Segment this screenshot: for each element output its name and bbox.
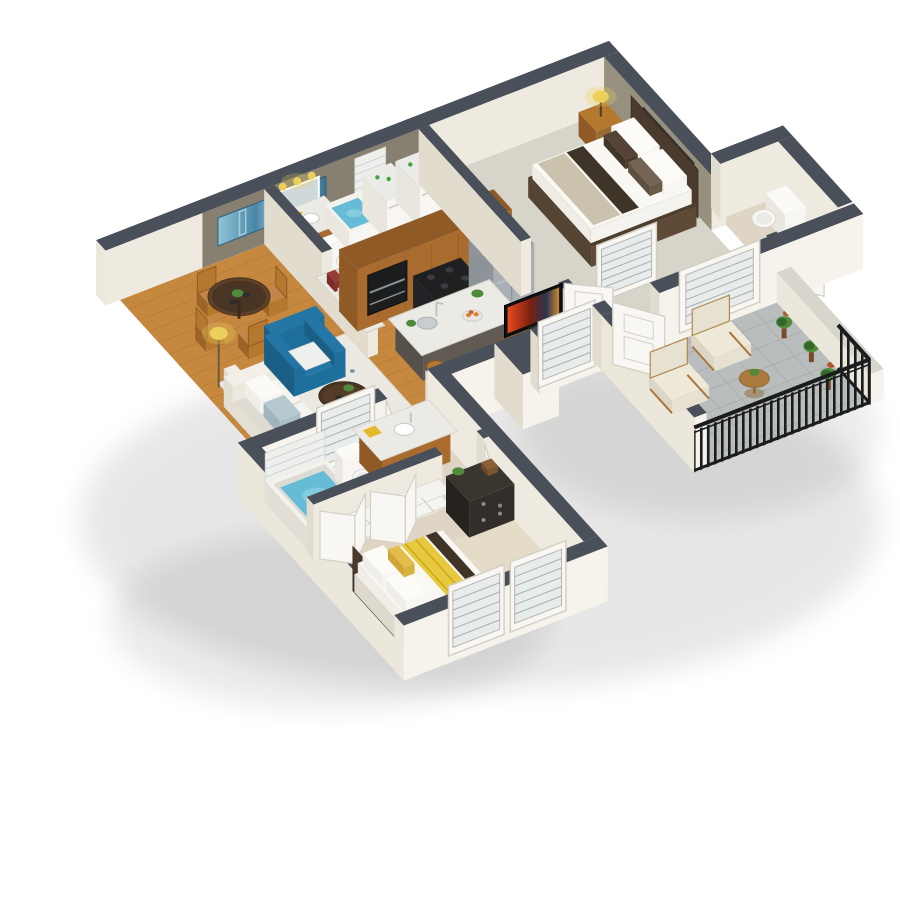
floorplan-canvas [0, 0, 900, 900]
apartment-3d-floorplan [0, 0, 900, 900]
